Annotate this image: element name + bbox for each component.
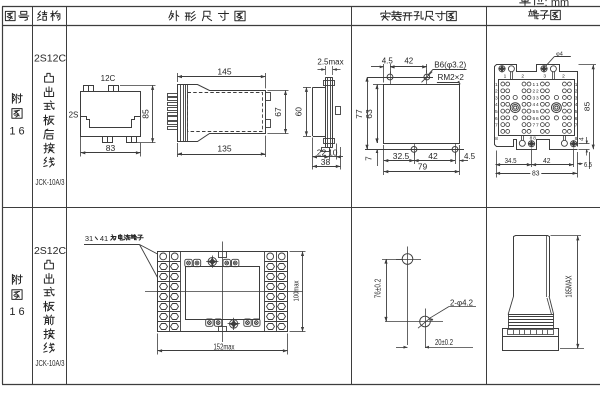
svg-text:3: 3 bbox=[543, 74, 546, 80]
svg-text:1: 1 bbox=[495, 82, 498, 88]
svg-text:85: 85 bbox=[140, 109, 150, 119]
svg-text:JCK-10A/3: JCK-10A/3 bbox=[36, 177, 65, 187]
svg-text:2.5max: 2.5max bbox=[317, 57, 343, 66]
svg-text:83: 83 bbox=[532, 171, 540, 178]
svg-text:85: 85 bbox=[583, 102, 592, 112]
svg-text:mm: mm bbox=[551, 0, 569, 9]
svg-text:77: 77 bbox=[354, 109, 364, 119]
svg-text:1 6: 1 6 bbox=[9, 306, 24, 318]
svg-text:32.5: 32.5 bbox=[393, 151, 410, 161]
svg-text:6: 6 bbox=[495, 116, 498, 122]
svg-text:3: 3 bbox=[495, 95, 498, 101]
svg-text:76±0.2: 76±0.2 bbox=[374, 278, 383, 298]
svg-text:7: 7 bbox=[536, 123, 539, 129]
svg-text:6.5: 6.5 bbox=[584, 162, 592, 169]
svg-text:135: 135 bbox=[217, 144, 231, 154]
svg-text:2: 2 bbox=[495, 89, 498, 95]
svg-text:RM2×2: RM2×2 bbox=[437, 72, 464, 82]
svg-text:B6(φ3.2): B6(φ3.2) bbox=[434, 60, 466, 70]
svg-text:8: 8 bbox=[575, 136, 578, 142]
svg-text:6: 6 bbox=[536, 116, 539, 122]
svg-text:152max: 152max bbox=[214, 343, 235, 352]
svg-text:100max: 100max bbox=[294, 280, 301, 301]
svg-text:4.5: 4.5 bbox=[382, 56, 394, 65]
svg-text:JCK-10A/3: JCK-10A/3 bbox=[36, 358, 65, 368]
svg-text:6: 6 bbox=[575, 116, 578, 122]
svg-text:8: 8 bbox=[530, 135, 533, 141]
svg-text:67: 67 bbox=[273, 107, 283, 117]
svg-text:2S12C: 2S12C bbox=[34, 53, 67, 65]
svg-text:3: 3 bbox=[575, 95, 578, 101]
svg-text:2: 2 bbox=[575, 89, 578, 95]
svg-text:60: 60 bbox=[294, 107, 304, 117]
svg-text:5: 5 bbox=[536, 109, 539, 115]
svg-text:145: 145 bbox=[217, 66, 231, 76]
svg-text:2S12C: 2S12C bbox=[34, 245, 67, 257]
svg-text:2: 2 bbox=[536, 89, 539, 95]
svg-text:1: 1 bbox=[536, 82, 539, 88]
svg-text:5: 5 bbox=[575, 109, 578, 115]
svg-text:2: 2 bbox=[521, 74, 524, 80]
svg-text:41: 41 bbox=[100, 234, 108, 243]
svg-text:4: 4 bbox=[578, 137, 585, 141]
svg-text:42: 42 bbox=[543, 158, 551, 165]
svg-text:5: 5 bbox=[495, 109, 498, 115]
svg-text:8: 8 bbox=[495, 136, 498, 142]
svg-text:2: 2 bbox=[562, 74, 565, 80]
svg-text:34.5: 34.5 bbox=[505, 158, 517, 165]
svg-text:10: 10 bbox=[328, 147, 338, 157]
svg-text:φ4: φ4 bbox=[556, 52, 563, 58]
svg-text:38: 38 bbox=[321, 157, 331, 167]
svg-text:185MAX: 185MAX bbox=[563, 275, 573, 297]
svg-text:20±0.2: 20±0.2 bbox=[435, 338, 453, 347]
svg-text:4: 4 bbox=[575, 102, 578, 108]
svg-text::: : bbox=[544, 0, 547, 9]
svg-text:63: 63 bbox=[364, 109, 374, 119]
svg-text:42: 42 bbox=[404, 56, 413, 65]
svg-text:1: 1 bbox=[504, 74, 507, 80]
svg-text:31: 31 bbox=[85, 234, 93, 243]
svg-text:42: 42 bbox=[428, 151, 438, 161]
svg-text:79: 79 bbox=[418, 161, 428, 171]
svg-text:83: 83 bbox=[106, 143, 116, 153]
svg-text:8: 8 bbox=[533, 135, 536, 141]
svg-text:1 6: 1 6 bbox=[9, 126, 24, 138]
svg-text:4.5: 4.5 bbox=[464, 152, 476, 161]
svg-text:3: 3 bbox=[536, 95, 539, 101]
svg-text:7: 7 bbox=[495, 123, 498, 129]
svg-text:4: 4 bbox=[495, 102, 498, 108]
svg-text:22: 22 bbox=[317, 147, 327, 157]
svg-text:1: 1 bbox=[575, 82, 578, 88]
svg-text:7: 7 bbox=[365, 156, 374, 161]
svg-text:12C: 12C bbox=[101, 74, 116, 83]
svg-text:2S: 2S bbox=[69, 111, 79, 120]
svg-text:4: 4 bbox=[536, 102, 539, 108]
svg-text:7: 7 bbox=[575, 123, 578, 129]
